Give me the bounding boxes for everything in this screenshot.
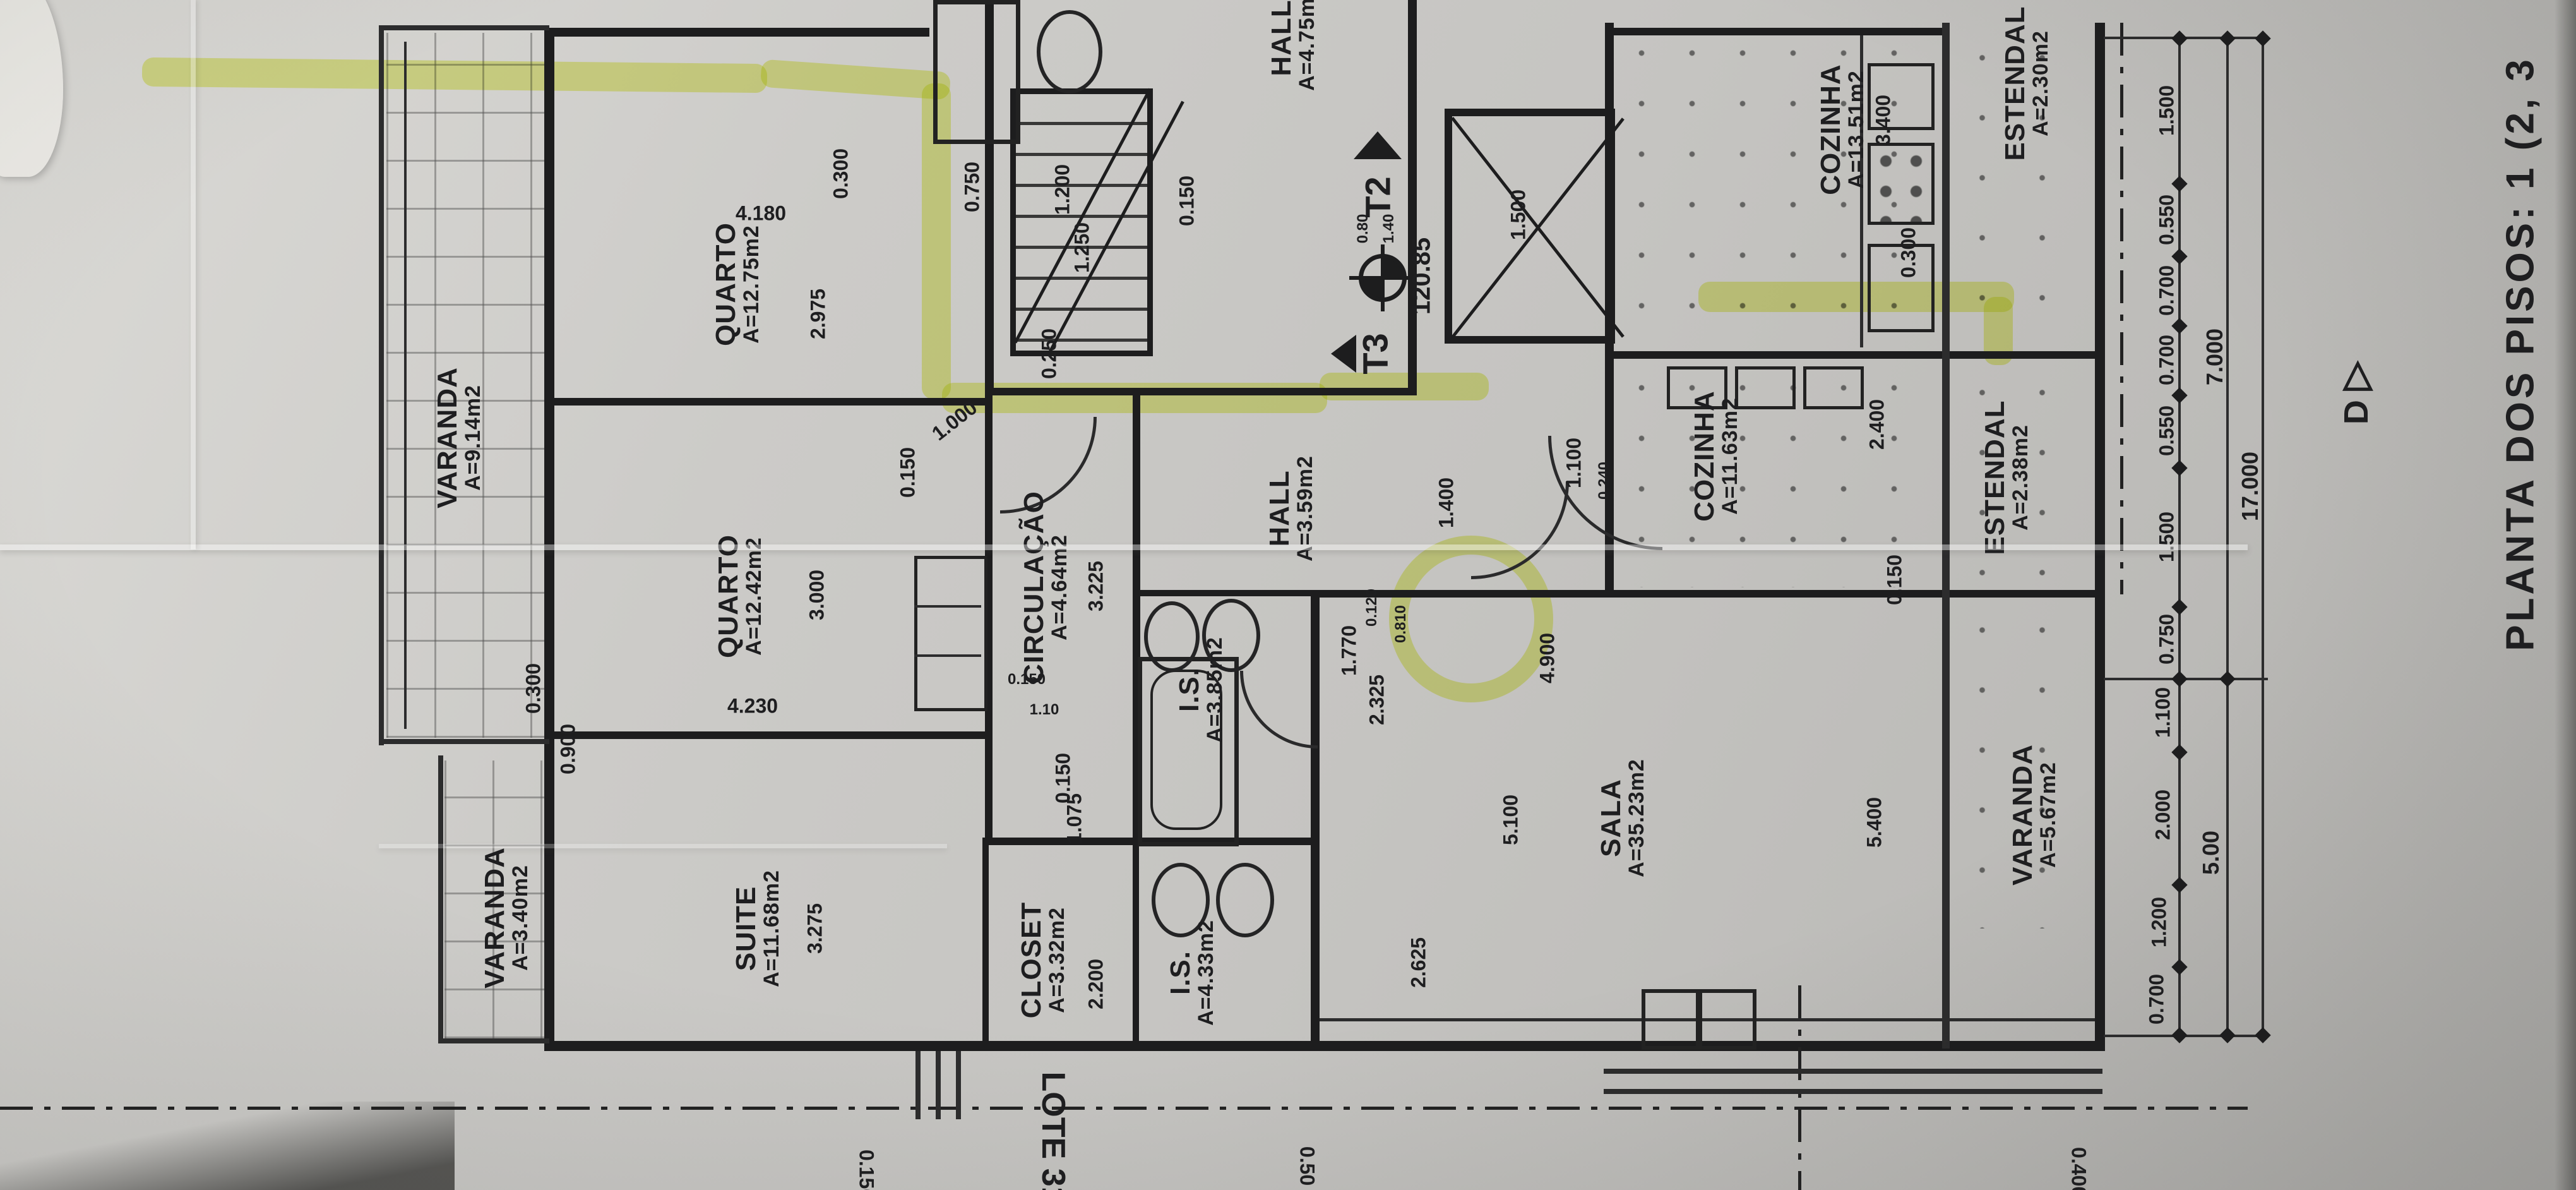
property-line (1798, 985, 1801, 1190)
paper-edge-shadow (0, 1102, 455, 1190)
dimension-label: 2.625 (1407, 937, 1431, 988)
dimension-label: 0.240 (1595, 462, 1613, 500)
dimension-label: 0.550 (2156, 406, 2179, 456)
dimension-label: 0.400 (2067, 1147, 2090, 1190)
dimension-label: 4.230 (727, 695, 778, 718)
bathtub (933, 0, 1020, 144)
kitchen-sink (1803, 366, 1864, 409)
floor-plan-photo: T2 120.85 T3 VARANDAA=9.14m2 QUARTOA=12.… (0, 0, 2576, 1190)
room-label-circulacao: CIRCULAÇÃOA=4.64m2 (1020, 491, 1071, 684)
dimension-label: 0.300 (830, 148, 853, 199)
room-label-hall: HALLA=4.75m2 (1267, 0, 1319, 91)
dimension-label: 0.150 (1008, 671, 1046, 688)
dimension-label: 1.10 (1030, 701, 1059, 719)
dimension-label: 0.150 (897, 447, 920, 498)
dimension-label: 0.150 (1883, 555, 1907, 605)
dimension-label: 0.700 (2156, 335, 2179, 385)
dimension-label: 0.750 (961, 162, 984, 212)
dimension-label: 4.180 (736, 202, 786, 225)
dimension-label: 3.275 (804, 903, 827, 954)
paper-fold (0, 544, 2248, 550)
section-triangle-icon: ▷ (2334, 361, 2376, 390)
room-label-varanda: VARANDAA=3.40m2 (480, 847, 532, 989)
dimension-label: 1.770 (1338, 625, 1361, 676)
room-label-quarto: QUARTOA=12.42m2 (714, 534, 766, 658)
dimension-label: 2.000 (2152, 790, 2175, 840)
dimension-label: 0.900 (557, 724, 580, 774)
room-label-sala: SALAA=35.23m2 (1597, 759, 1649, 877)
dimension-label: 0.250 (1038, 328, 1061, 379)
dimension-label: 0.150 (1052, 753, 1075, 803)
dimension-label: 0.300 (1897, 227, 1921, 278)
dimension-label: 1.100 (1563, 438, 1586, 488)
dimension-label: 2.975 (807, 289, 830, 339)
dimension-label: 1.500 (1507, 189, 1530, 240)
dimension-label: 2.325 (1366, 675, 1389, 725)
shower-arc (1240, 671, 1318, 748)
room-label-is: I.S.A=3.85m2 (1175, 637, 1227, 743)
room-label-cozinha: COZINHAA=13.51m2 (1816, 64, 1868, 195)
room-label-cozinha: COZINHAA=11.63m2 (1690, 390, 1742, 521)
room-label-varanda: VARANDAA=5.67m2 (2008, 744, 2060, 886)
dimension-label: 3.225 (1085, 561, 1108, 611)
room-label-closet: CLOSETA=3.32m2 (1017, 902, 1069, 1018)
dimension-label: 0.750 (2156, 614, 2179, 664)
dimension-label: 0.810 (1392, 605, 1410, 643)
dimension-label: 1.100 (2152, 687, 2175, 738)
t3-direction-triangle (1331, 335, 1356, 373)
paper-torn-edge (0, 0, 63, 177)
dimension-label: 1.40 (1380, 214, 1398, 244)
dimension-label: 0.120 (1363, 589, 1381, 627)
room-label-is: I.S.A=4.33m2 (1166, 920, 1218, 1026)
level-marker-icon (1359, 254, 1407, 302)
t2-marker: T2 (1357, 176, 1398, 217)
highlighter-stroke (142, 57, 767, 93)
dimension-label: 0.150 (855, 1150, 878, 1190)
dimension-label: 0.300 (522, 663, 546, 714)
dimension-label: 0.700 (2156, 265, 2179, 316)
dimension-label: 4.900 (1536, 633, 1559, 683)
wardrobe (914, 556, 987, 711)
furniture (1642, 989, 1700, 1050)
washbasin (1037, 10, 1102, 93)
dimension-label: 0.50 (1296, 1146, 1319, 1186)
kitchen-appliance (1735, 366, 1796, 409)
dimension-label: 1.400 (1435, 478, 1458, 528)
dimension-label: 1.500 (2156, 512, 2179, 562)
boundary-line (2120, 23, 2123, 594)
dimension-label: 0.550 (2156, 195, 2179, 245)
dimension-label: 3.400 (1872, 95, 1895, 145)
dimension-label: 0.80 (1354, 214, 1372, 244)
dimension-label: 5.100 (1500, 795, 1523, 845)
furniture (1698, 989, 1756, 1050)
paper-edge-shadow (2555, 0, 2576, 1190)
paper-fold (379, 844, 947, 848)
dimension-label: 17.000 (2237, 452, 2263, 521)
drawing-title: PLANTA DOS PISOS: 1 (2, 3 (2498, 56, 2543, 651)
highlighter-stroke (1698, 282, 2014, 312)
dimension-label: 2.200 (1085, 959, 1108, 1009)
bidet (1216, 863, 1274, 937)
dimension-label: 0.700 (2145, 974, 2169, 1025)
room-label-quarto: QUARTOA=12.75m2 (712, 222, 763, 346)
room-label-estendal: ESTENDALA=2.38m2 (1981, 400, 2032, 555)
room-label-suite: SUITEA=11.68m2 (732, 870, 784, 987)
dimension-label: 1.200 (1051, 164, 1075, 215)
dimension-label: 2.400 (1866, 399, 1889, 450)
dimension-label: 5.00 (2198, 831, 2224, 875)
lot-label: LOTE 31 (1034, 1072, 1072, 1190)
level-value: 120.85 (1408, 237, 1436, 315)
room-label-estendal: ESTENDALA=2.30m2 (2001, 6, 2053, 160)
highlighter-stroke (1320, 373, 1489, 400)
door-arc (1471, 481, 1569, 579)
dimension-label: 0.150 (1176, 176, 1199, 226)
kitchen-hob (1868, 143, 1935, 225)
t2-direction-triangle (1354, 131, 1402, 159)
dimension-label: 1.200 (2148, 897, 2171, 947)
room-label-varanda: VARANDAA=9.14m2 (433, 367, 485, 508)
dimension-label: 1.500 (2156, 85, 2179, 136)
dimension-label: 7.000 (2202, 328, 2228, 385)
section-marker-d: D ▷ (2333, 361, 2377, 424)
dimension-label: 5.400 (1863, 797, 1887, 848)
t3-marker: T3 (1355, 333, 1396, 374)
paper-fold (191, 0, 196, 550)
dimension-label: 3.000 (806, 570, 829, 620)
dimension-label: 1.250 (1071, 222, 1094, 273)
